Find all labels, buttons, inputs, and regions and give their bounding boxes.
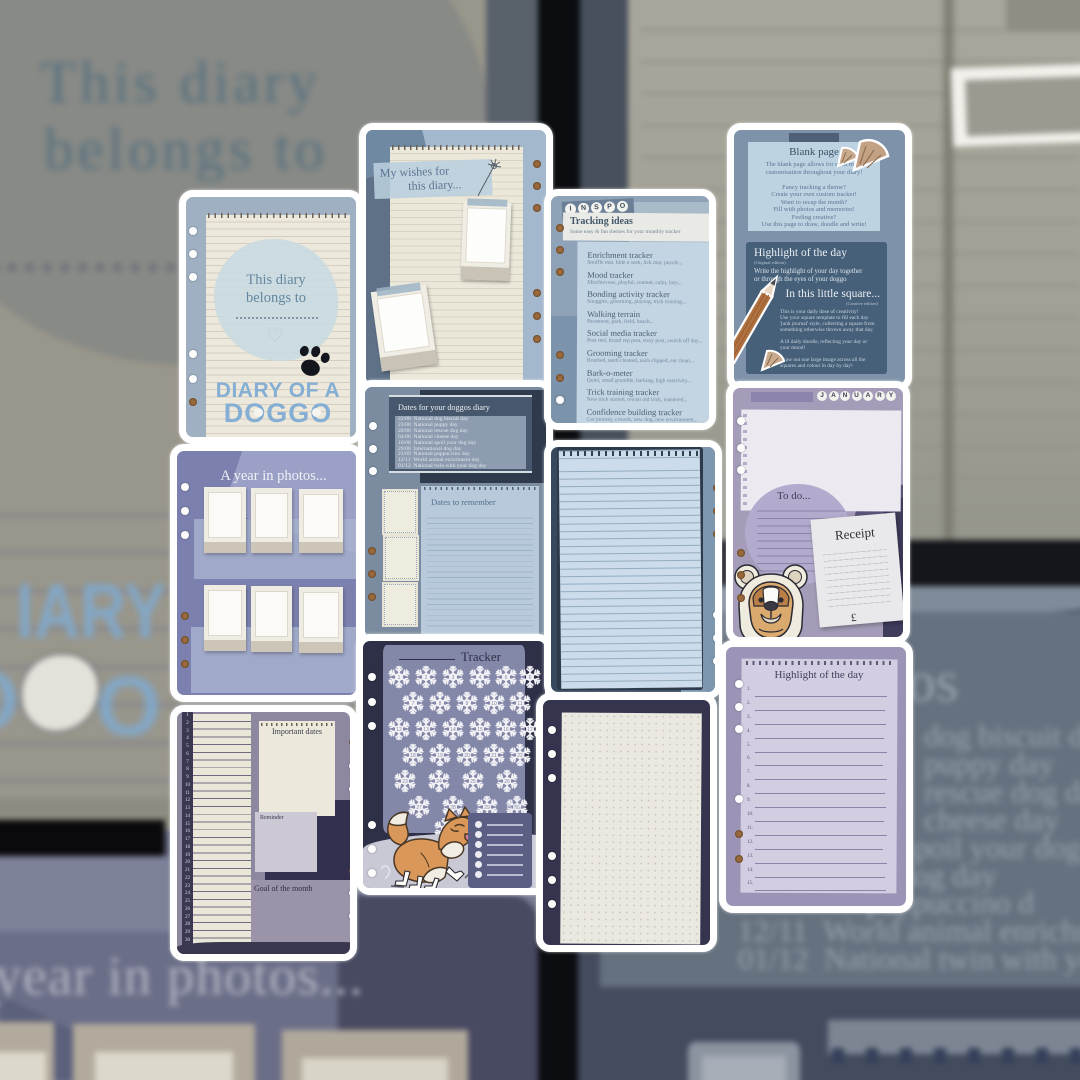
svg-text:10: 10 [491,701,497,707]
svg-text:5: 5 [505,675,508,681]
svg-text:18: 18 [410,753,416,759]
svg-text:9: 9 [466,701,469,707]
svg-text:6: 6 [529,675,532,681]
svg-text:12: 12 [396,727,402,733]
svg-text:23: 23 [402,779,408,785]
svg-text:19: 19 [437,753,443,759]
svg-text:2: 2 [425,675,428,681]
svg-text:1: 1 [398,675,401,681]
svg-text:17: 17 [527,727,533,733]
svg-text:26: 26 [504,779,510,785]
svg-text:8: 8 [439,701,442,707]
svg-text:3: 3 [452,675,455,681]
svg-text:25: 25 [470,779,476,785]
svg-text:24: 24 [436,779,442,785]
svg-text:4: 4 [479,675,482,681]
svg-text:21: 21 [491,753,497,759]
svg-text:11: 11 [517,701,522,707]
svg-text:13: 13 [423,727,429,733]
svg-text:14: 14 [450,727,456,733]
svg-text:22: 22 [517,753,523,759]
svg-text:15: 15 [477,727,483,733]
svg-text:29: 29 [484,805,490,811]
svg-text:20: 20 [464,753,470,759]
svg-text:7: 7 [412,701,415,707]
svg-text:16: 16 [503,727,509,733]
